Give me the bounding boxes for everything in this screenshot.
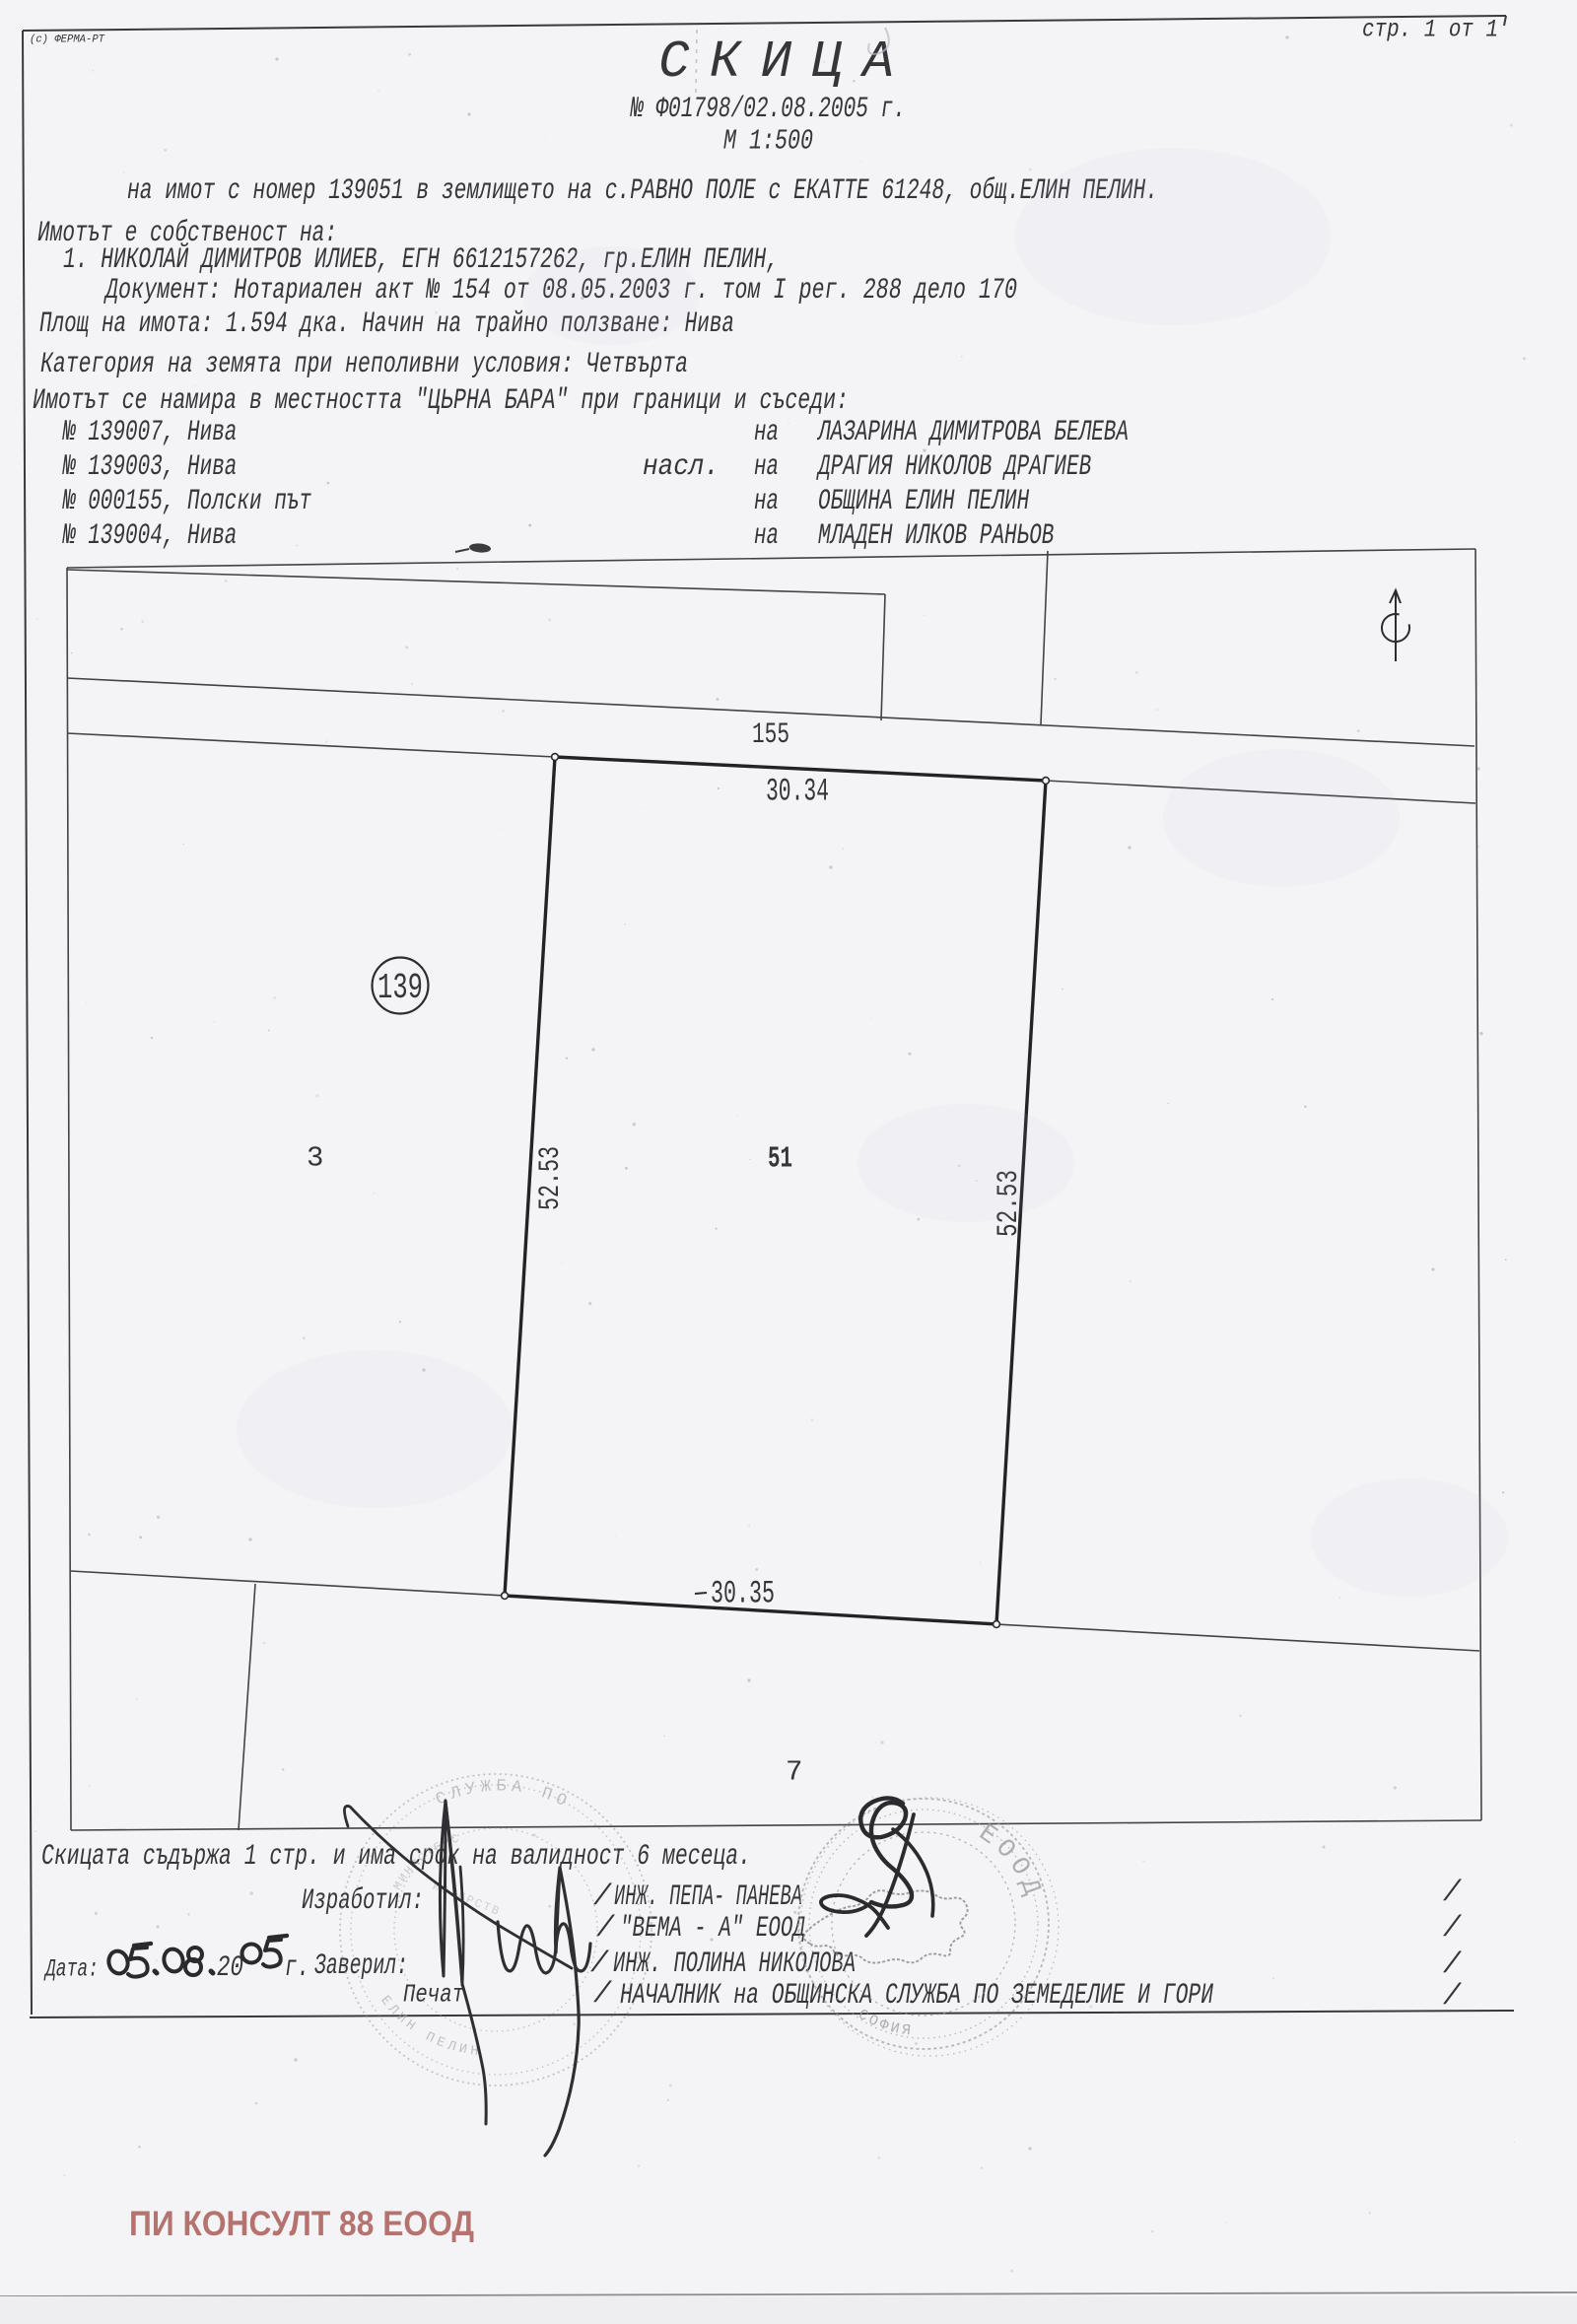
svg-text:на: на [754, 519, 779, 553]
svg-text:№ Ф01798/02.08.2005 г.: № Ф01798/02.08.2005 г. [630, 93, 906, 126]
svg-text:НАЧАЛНИК на ОБЩИНСКА СЛУЖБА ПО: НАЧАЛНИК на ОБЩИНСКА СЛУЖБА ПО ЗЕМЕДЕЛИЕ… [620, 1979, 1213, 2013]
svg-text:№ 139007, Нива: № 139007, Нива [62, 416, 238, 449]
svg-text:20: 20 [217, 1951, 243, 1985]
svg-text:г.: г. [285, 1951, 309, 1985]
svg-text:/: / [1443, 1877, 1462, 1910]
svg-text:(с) ФЕРМА-РТ: (с) ФЕРМА-РТ [30, 34, 105, 45]
svg-text:30.35: 30.35 [711, 1575, 775, 1611]
svg-text:Категория на земята при неполи: Категория на земята при неполивни услови… [40, 348, 688, 381]
svg-text:ПИ КОНСУЛТ 88 ЕООД: ПИ КОНСУЛТ 88 ЕООД [129, 2205, 474, 2243]
svg-text:ЛАЗАРИНА ДИМИТРОВА БЕЛЕВА: ЛАЗАРИНА ДИМИТРОВА БЕЛЕВА [817, 416, 1129, 449]
svg-text:Имотът се намира в местността: Имотът се намира в местността "ЦЬРНА БАР… [33, 384, 849, 418]
svg-text:30.34: 30.34 [766, 773, 829, 809]
svg-text:на: на [754, 450, 779, 484]
svg-text:/: / [593, 1978, 612, 2012]
svg-text:ДРАГИЯ НИКОЛОВ ДРАГИЕВ: ДРАГИЯ НИКОЛОВ ДРАГИЕВ [816, 450, 1091, 484]
svg-text:ЕООД: ЕООД [973, 1817, 1049, 1904]
svg-text:№ 139004, Нива: № 139004, Нива [62, 519, 238, 553]
svg-text:139: 139 [377, 968, 423, 1008]
svg-text:на имот с номер 139051 в земли: на имот с номер 139051 в землището на с.… [127, 174, 1158, 208]
svg-text:№ 000155, Полски път: № 000155, Полски път [62, 485, 311, 518]
svg-text:51: 51 [768, 1142, 792, 1177]
svg-text:ИНЖ. ПЕПА- ПАНЕВА: ИНЖ. ПЕПА- ПАНЕВА [614, 1880, 802, 1914]
svg-text:/: / [596, 1912, 615, 1946]
svg-text:/: / [590, 1948, 609, 1981]
svg-text:Скицата съдържа 1 стр. и има: Скицата съдържа 1 стр. и има срок на вал… [41, 1840, 751, 1874]
svg-text:/: / [1443, 1980, 1462, 2014]
svg-text:МЛАДЕН ИЛКОВ РАНЬОВ: МЛАДЕН ИЛКОВ РАНЬОВ [818, 519, 1054, 553]
svg-text:7: 7 [786, 1755, 802, 1788]
svg-text:Дата:: Дата: [43, 1955, 99, 1984]
svg-text:155: 155 [752, 718, 789, 752]
svg-text:СЛУЖБА ПО: СЛУЖБА ПО [434, 1777, 575, 1813]
svg-text:/: / [1443, 1912, 1462, 1946]
svg-text:/: / [593, 1880, 612, 1914]
svg-text:3: 3 [307, 1141, 323, 1174]
svg-text:стр. 1 от 1: стр. 1 от 1 [1362, 16, 1498, 44]
svg-text:/: / [1443, 1948, 1462, 1982]
svg-text:52.53: 52.53 [534, 1146, 568, 1210]
svg-text:на: на [754, 416, 779, 449]
svg-text:Печат: Печат [403, 1979, 464, 2009]
svg-text:М 1:500: М 1:500 [723, 124, 813, 157]
svg-text:Изработил:: Изработил: [302, 1884, 424, 1918]
svg-text:Заверил:: Заверил: [314, 1949, 408, 1983]
svg-text:№ 139003, Нива: № 139003, Нива [62, 450, 238, 484]
svg-text:ОБЩИНА ЕЛИН ПЕЛИН: ОБЩИНА ЕЛИН ПЕЛИН [818, 485, 1029, 518]
svg-text:на: на [754, 485, 779, 518]
svg-text:насл.: насл. [643, 450, 720, 484]
